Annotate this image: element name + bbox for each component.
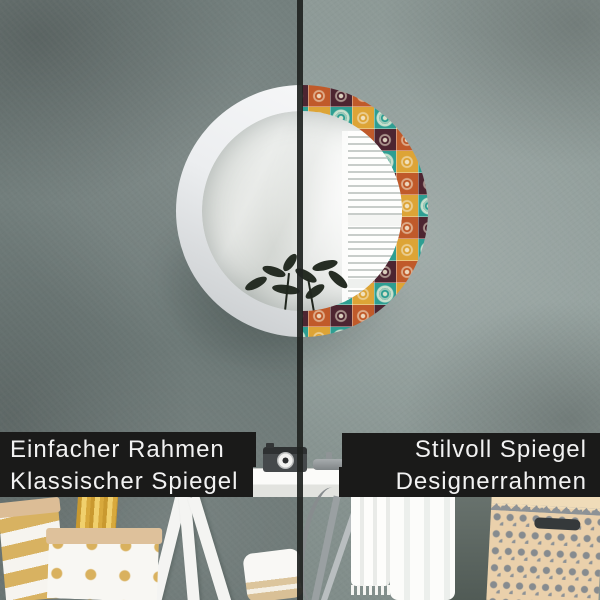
- reflected-window-sill: [348, 279, 402, 288]
- reflected-window-mid-rail: [348, 215, 402, 226]
- label-left-line1-text: Einfacher Rahmen: [10, 436, 225, 464]
- product-photo-round-mirror-comparison: Einfacher Rahmen Klassischer Spiegel Sti…: [0, 0, 600, 600]
- camera-lens: [277, 452, 294, 469]
- towel-fringe: [351, 585, 390, 595]
- split-divider-line: [297, 0, 303, 600]
- striped-pillow: [242, 548, 305, 600]
- diamond-pattern-basket: [486, 491, 600, 600]
- white-towel-large: [390, 487, 455, 600]
- label-left-line2: Klassischer Spiegel: [0, 467, 253, 497]
- gold-polkadot-paper-bag: [47, 534, 159, 600]
- plant-leaf: [243, 274, 268, 293]
- basket-handle-slot: [534, 517, 581, 530]
- white-towel-small: [351, 489, 390, 586]
- camera-knob: [266, 443, 274, 448]
- label-right-line2: Designerrahmen: [339, 467, 600, 497]
- plant-leaf: [303, 282, 326, 302]
- paper-bag-rim: [46, 528, 162, 544]
- label-right-line2-text: Designerrahmen: [396, 468, 587, 496]
- label-right-line1: Stilvoll Spiegel: [342, 433, 600, 467]
- label-left-line1: Einfacher Rahmen: [0, 432, 256, 467]
- label-right-line1-text: Stilvoll Spiegel: [415, 436, 587, 464]
- label-left-line2-text: Klassischer Spiegel: [10, 468, 238, 496]
- basket-rim-pattern: [491, 503, 600, 516]
